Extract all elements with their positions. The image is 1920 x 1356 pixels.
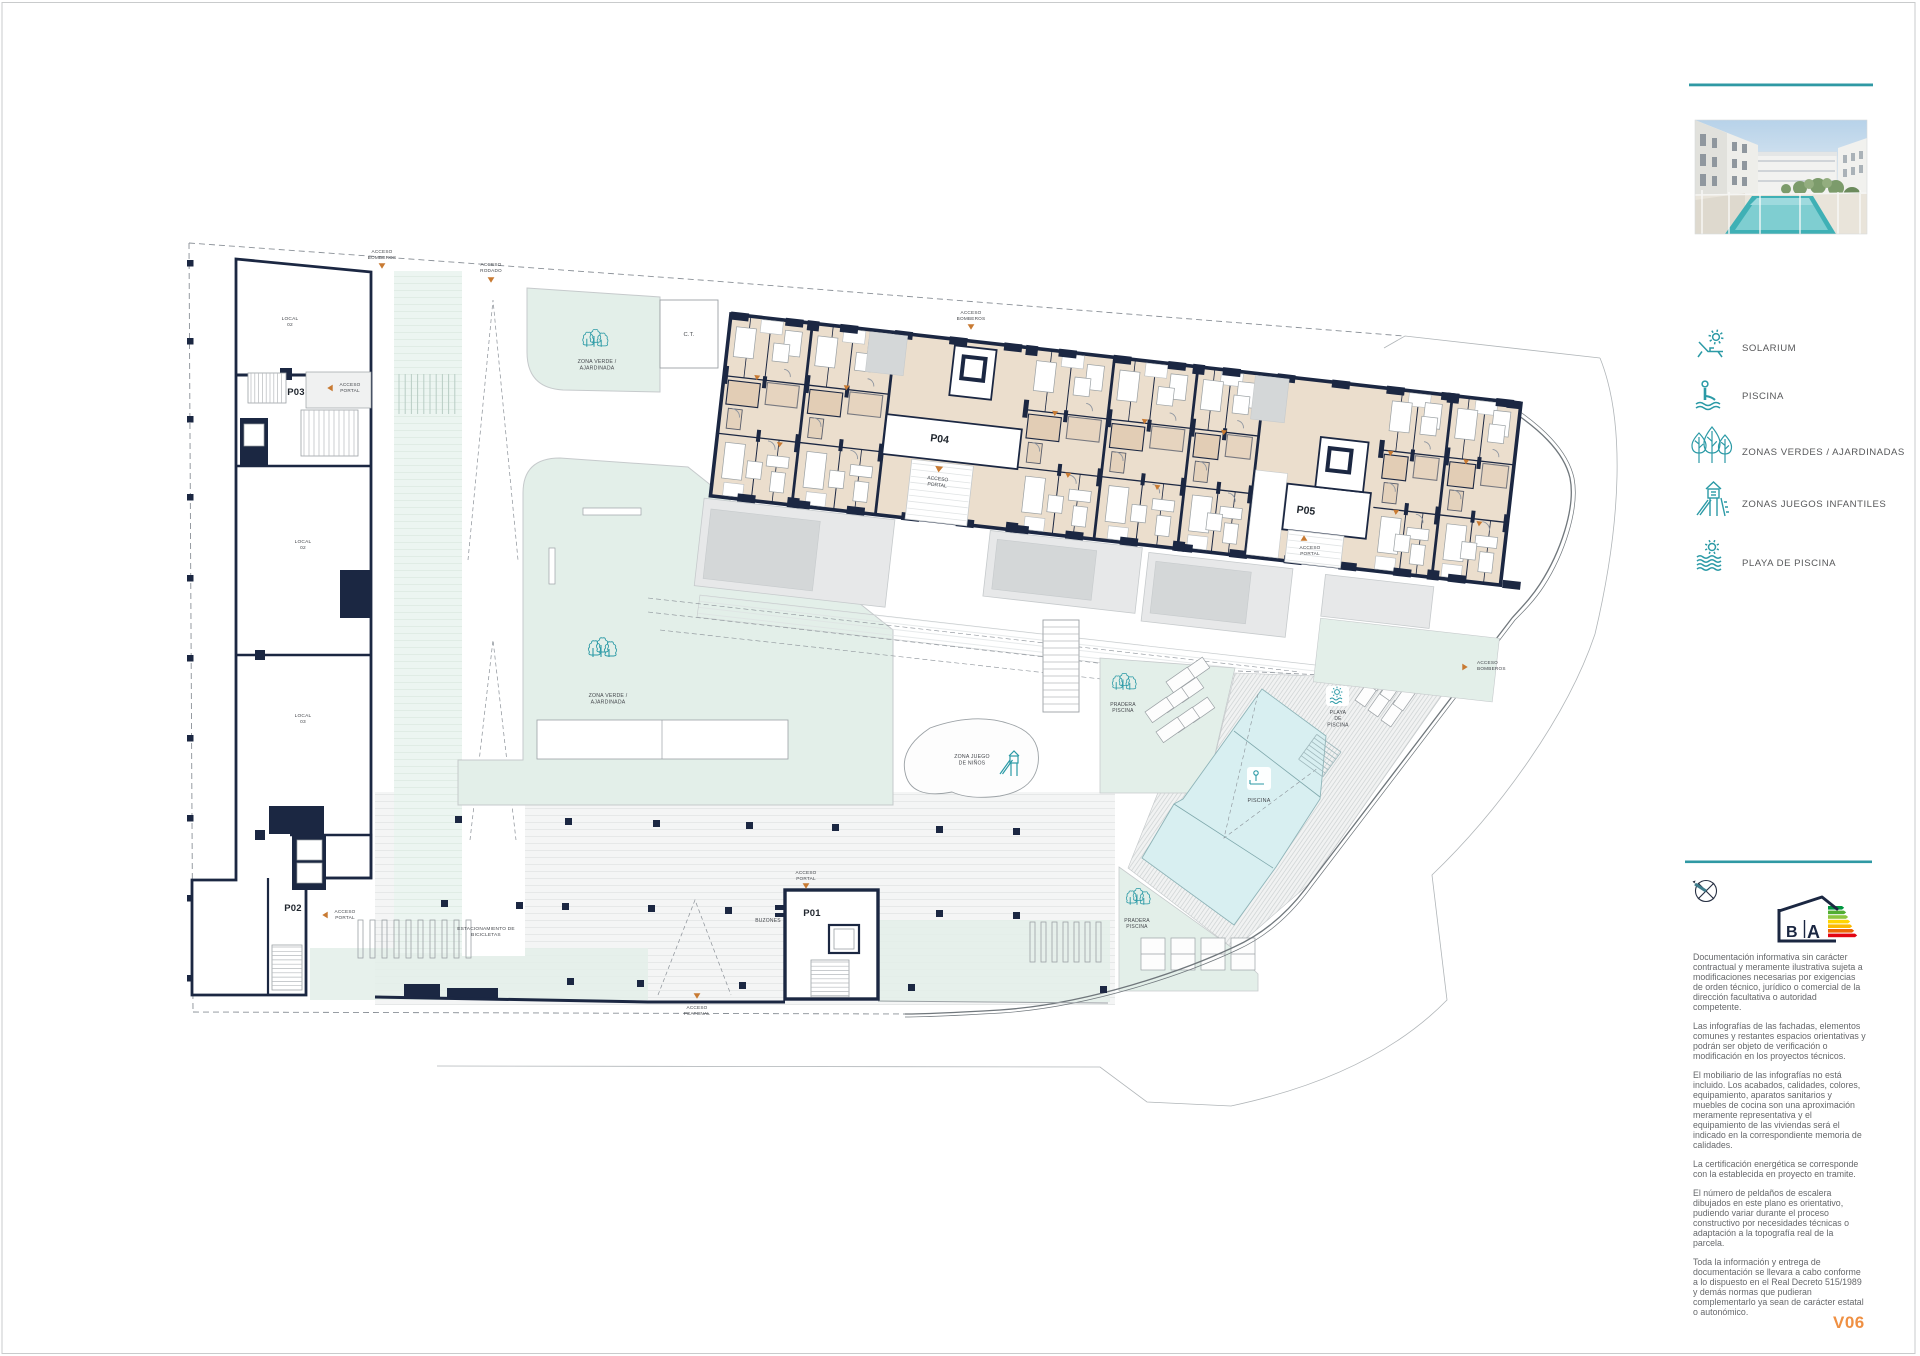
svg-text:PRADERAPISCINA: PRADERAPISCINA <box>1110 702 1136 714</box>
svg-text:PLAYA DE PISCINA: PLAYA DE PISCINA <box>1742 558 1836 569</box>
svg-text:C.T.: C.T. <box>683 332 694 338</box>
svg-text:P02: P02 <box>284 903 302 914</box>
svg-text:P01: P01 <box>803 908 821 919</box>
svg-text:ZONA VERDE /AJARDINADA: ZONA VERDE /AJARDINADA <box>589 693 628 705</box>
svg-text:A: A <box>1807 922 1820 942</box>
svg-text:ACCESOBOMBEROS: ACCESOBOMBEROS <box>368 249 397 260</box>
svg-text:PISCINA: PISCINA <box>1742 391 1784 402</box>
svg-text:P05: P05 <box>1296 504 1316 518</box>
svg-text:ZONA JUEGODE NIÑOS: ZONA JUEGODE NIÑOS <box>954 754 989 766</box>
svg-text:SOLARIUM: SOLARIUM <box>1742 343 1796 354</box>
svg-text:P03: P03 <box>287 387 305 398</box>
svg-text:BUZONES: BUZONES <box>755 918 781 924</box>
svg-text:ACCESORODADO: ACCESORODADO <box>480 262 502 273</box>
svg-text:ACCESOPORTAL: ACCESOPORTAL <box>796 870 817 881</box>
svg-text:ACCESOBOMBEROS: ACCESOBOMBEROS <box>957 310 986 321</box>
svg-text:PRADERAPISCINA: PRADERAPISCINA <box>1124 918 1150 930</box>
svg-text:ACCESOPORTAL: ACCESOPORTAL <box>340 382 361 393</box>
svg-text:ZONA VERDE /AJARDINADA: ZONA VERDE /AJARDINADA <box>578 359 617 371</box>
svg-text:ZONAS VERDES / AJARDINADAS: ZONAS VERDES / AJARDINADAS <box>1742 447 1905 458</box>
svg-text:ACCESOPORTAL: ACCESOPORTAL <box>335 909 356 920</box>
svg-text:ACCESOPEATONAL: ACCESOPEATONAL <box>684 1005 710 1016</box>
svg-text:ACCESOPORTAL: ACCESOPORTAL <box>1300 545 1321 556</box>
svg-text:B: B <box>1786 924 1798 941</box>
svg-text:PISCINA: PISCINA <box>1248 798 1271 804</box>
svg-text:P04: P04 <box>930 432 950 446</box>
svg-text:ZONAS JUEGOS INFANTILES: ZONAS JUEGOS INFANTILES <box>1742 499 1886 510</box>
svg-text:ACCESOPORTAL: ACCESOPORTAL <box>926 475 948 490</box>
